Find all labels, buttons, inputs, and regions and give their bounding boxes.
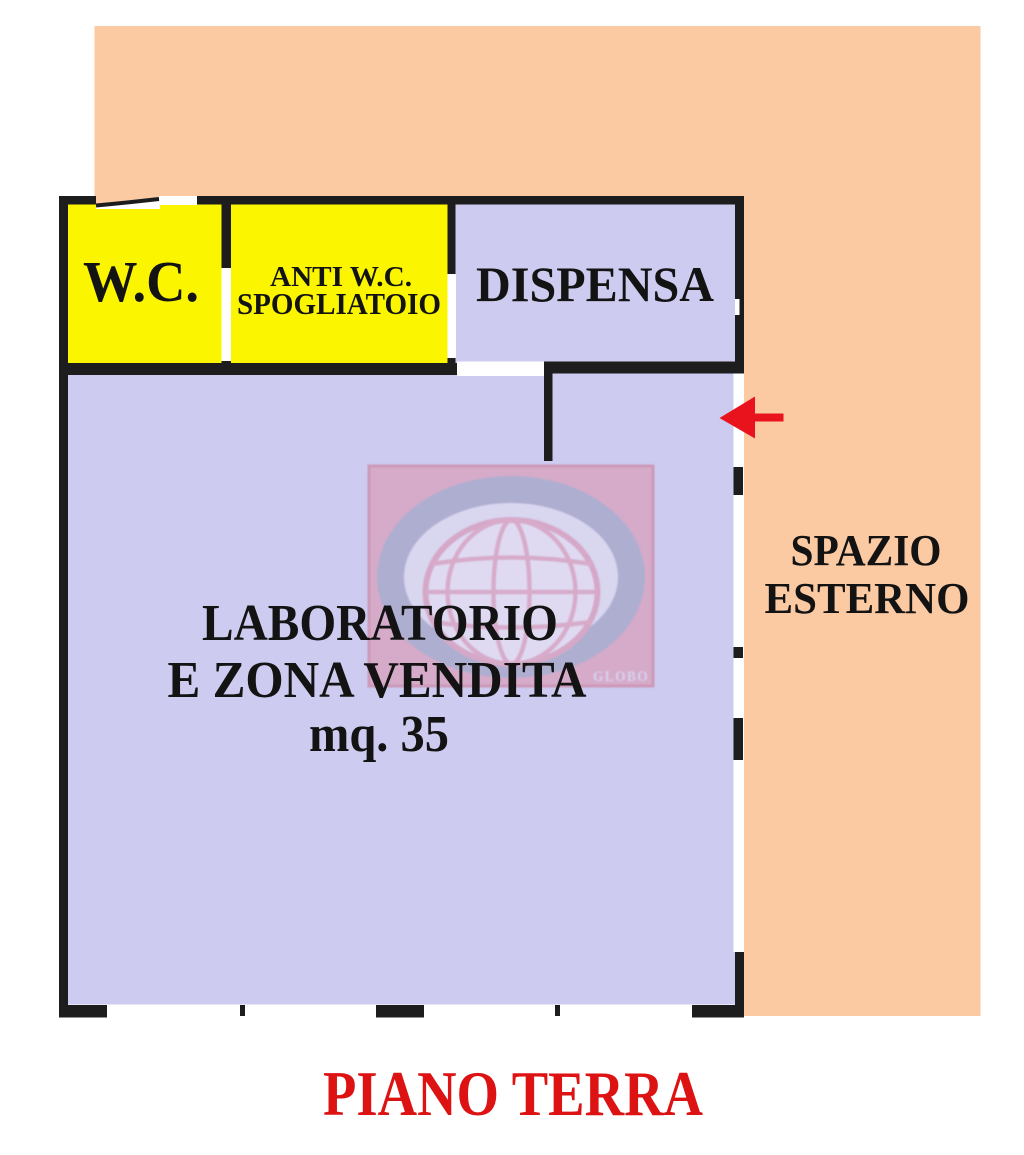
svg-text:mq. 35: mq. 35 bbox=[309, 706, 449, 763]
svg-text:LABORATORIO: LABORATORIO bbox=[202, 595, 558, 652]
svg-text:PIANO TERRA: PIANO TERRA bbox=[323, 1059, 703, 1129]
svg-text:GLOBO: GLOBO bbox=[593, 669, 649, 685]
svg-text:SPAZIO: SPAZIO bbox=[791, 526, 942, 575]
svg-text:SPOGLIATOIO: SPOGLIATOIO bbox=[237, 286, 441, 321]
svg-text:W.C.: W.C. bbox=[83, 249, 199, 314]
svg-text:DISPENSA: DISPENSA bbox=[476, 256, 714, 312]
svg-text:E ZONA VENDITA: E ZONA VENDITA bbox=[168, 652, 587, 709]
svg-text:ESTERNO: ESTERNO bbox=[765, 574, 970, 623]
